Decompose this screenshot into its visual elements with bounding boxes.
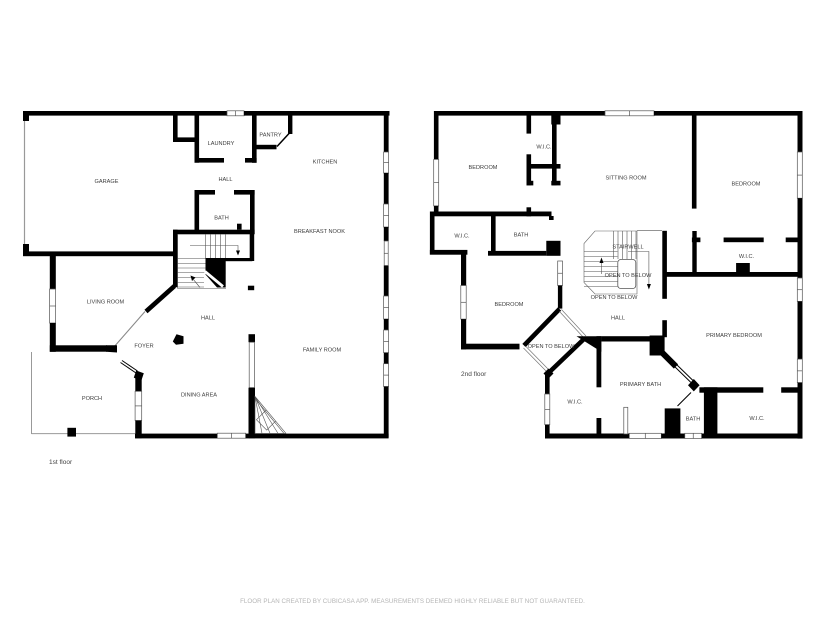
svg-text:GARAGE: GARAGE [95, 179, 119, 185]
svg-text:FLOOR PLAN CREATED BY CUBICASA: FLOOR PLAN CREATED BY CUBICASA APP. MEAS… [240, 598, 585, 605]
svg-text:2nd floor: 2nd floor [461, 371, 487, 378]
svg-text:KITCHEN: KITCHEN [313, 160, 338, 166]
svg-text:HALL: HALL [611, 316, 625, 322]
svg-text:BEDROOM: BEDROOM [732, 182, 761, 188]
svg-text:BATH: BATH [514, 233, 529, 239]
svg-text:HALL: HALL [201, 316, 215, 322]
svg-text:BEDROOM: BEDROOM [469, 165, 498, 171]
svg-text:BATH: BATH [214, 216, 229, 222]
svg-text:BREAKFAST NOOK: BREAKFAST NOOK [294, 229, 345, 235]
svg-text:OPEN TO BELOW: OPEN TO BELOW [528, 344, 575, 350]
svg-text:DINING AREA: DINING AREA [181, 393, 217, 399]
svg-text:PANTRY: PANTRY [259, 133, 281, 139]
svg-text:BEDROOM: BEDROOM [495, 302, 524, 308]
svg-text:W.I.C.: W.I.C. [749, 416, 765, 422]
svg-text:PRIMARY BATH: PRIMARY BATH [620, 382, 661, 388]
svg-text:OPEN TO BELOW: OPEN TO BELOW [591, 295, 638, 301]
svg-text:FAMILY ROOM: FAMILY ROOM [303, 348, 342, 354]
svg-text:OPEN TO BELOW: OPEN TO BELOW [605, 273, 652, 279]
svg-text:STAIRWELL: STAIRWELL [612, 245, 643, 251]
svg-text:LAUNDRY: LAUNDRY [208, 141, 235, 147]
svg-text:W.I.C.: W.I.C. [454, 234, 470, 240]
svg-text:LIVING ROOM: LIVING ROOM [87, 300, 125, 306]
svg-text:BATH: BATH [686, 417, 701, 423]
svg-text:PRIMARY BEDROOM: PRIMARY BEDROOM [706, 333, 762, 339]
svg-text:W.I.C.: W.I.C. [739, 254, 755, 260]
svg-text:W.I.C.: W.I.C. [536, 145, 552, 151]
svg-text:HALL: HALL [219, 177, 233, 183]
svg-text:W.I.C.: W.I.C. [567, 400, 583, 406]
svg-text:PORCH: PORCH [82, 396, 102, 402]
svg-text:1st floor: 1st floor [49, 459, 73, 466]
svg-text:SITTING ROOM: SITTING ROOM [605, 176, 646, 182]
svg-text:FOYER: FOYER [134, 344, 153, 350]
